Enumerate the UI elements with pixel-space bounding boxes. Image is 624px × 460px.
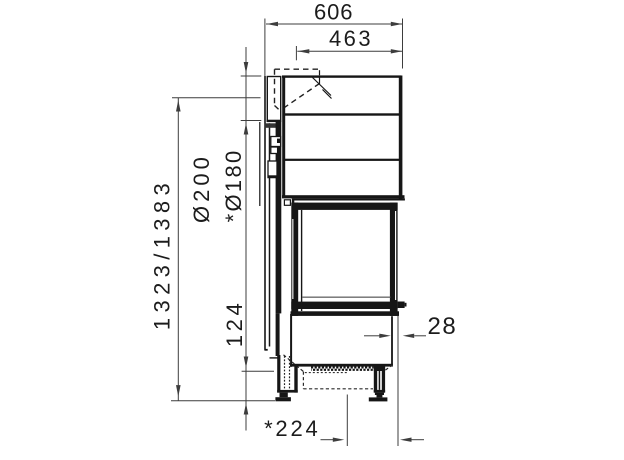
svg-text:124: 124 <box>222 300 247 348</box>
svg-text:1323/1383: 1323/1383 <box>150 178 175 330</box>
svg-text:28: 28 <box>427 313 457 340</box>
svg-text:*Ø180: *Ø180 <box>221 148 246 222</box>
svg-text:606: 606 <box>314 0 353 24</box>
svg-text:463: 463 <box>329 26 373 51</box>
svg-text:*224: *224 <box>264 416 320 441</box>
svg-text:Ø200: Ø200 <box>189 153 214 223</box>
